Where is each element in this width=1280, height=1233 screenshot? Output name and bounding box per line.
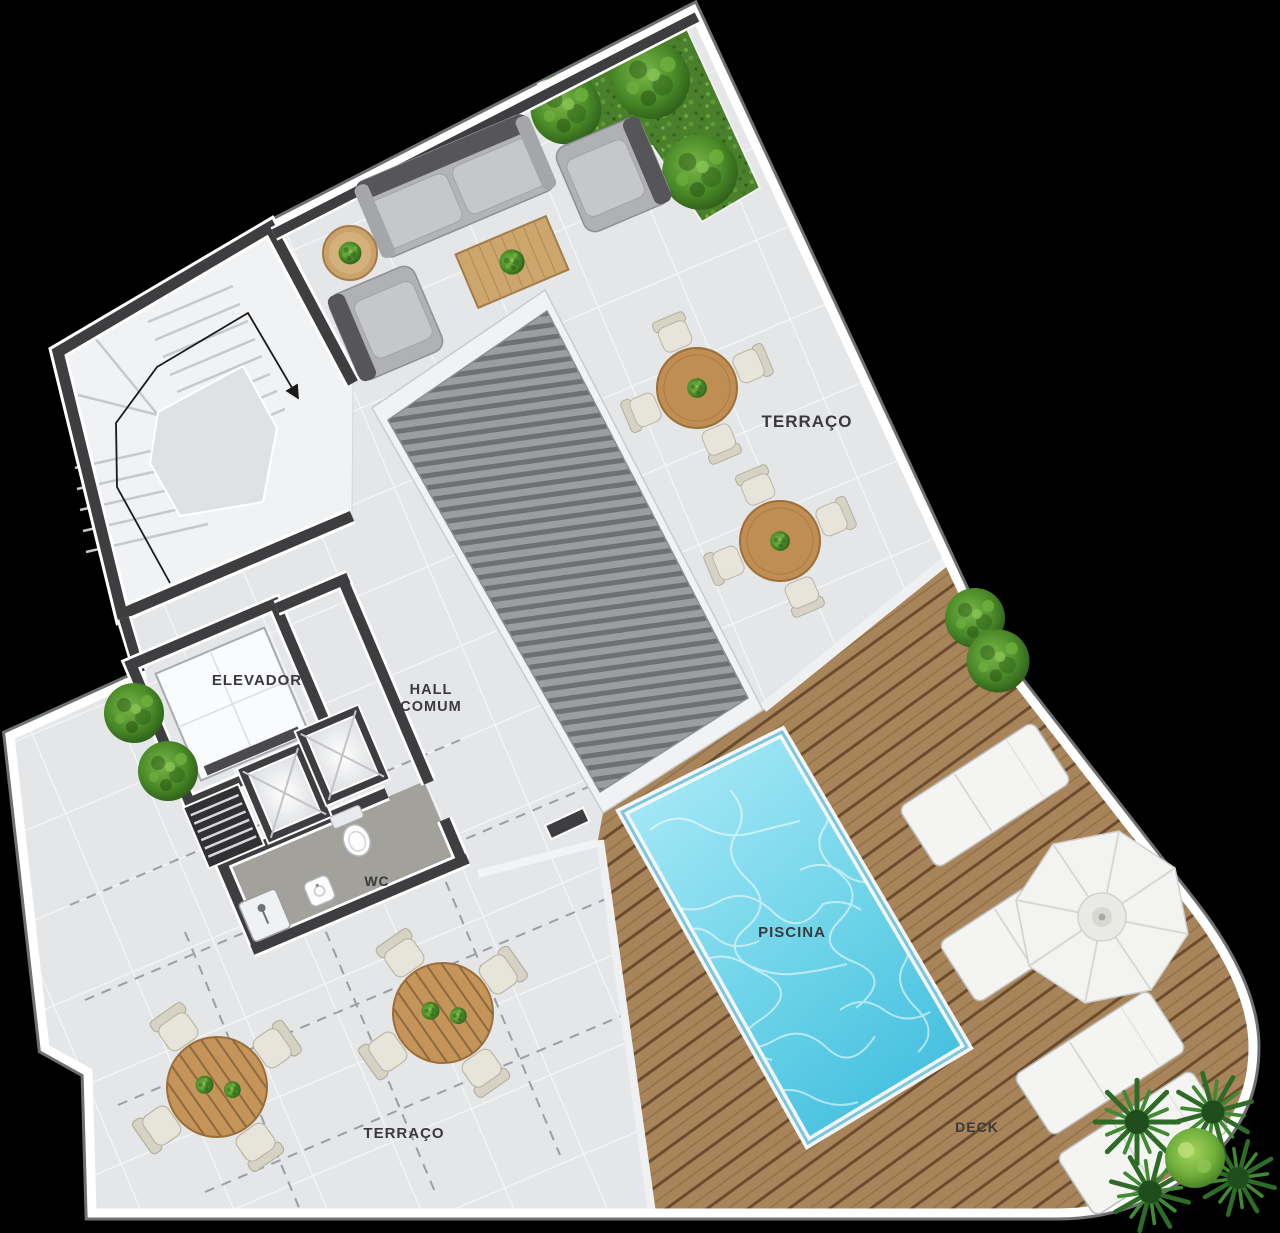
side-table xyxy=(323,226,377,280)
label-elevador: ELEVADOR xyxy=(212,672,302,689)
label-deck: DECK xyxy=(955,1119,999,1135)
floor-plan-page: TERRAÇO ELEVADOR HALL COMUM WC PISCINA D… xyxy=(0,0,1280,1233)
bush-corner-light xyxy=(1165,1128,1225,1188)
floor-plan-canvas: TERRAÇO ELEVADOR HALL COMUM WC PISCINA D… xyxy=(0,0,1280,1233)
bush-deck-2 xyxy=(967,630,1030,693)
bush-terrace-left-1 xyxy=(104,683,164,743)
label-hall-line1: HALL xyxy=(410,682,453,698)
bush-terrace-left-2 xyxy=(138,741,198,801)
label-wc: WC xyxy=(364,873,389,889)
label-terraco-top: TERRAÇO xyxy=(761,412,852,431)
label-terraco-bottom: TERRAÇO xyxy=(363,1125,444,1142)
label-piscina: PISCINA xyxy=(758,924,826,941)
label-hall-line2: COMUM xyxy=(400,699,461,715)
bush-top-3 xyxy=(662,134,738,210)
